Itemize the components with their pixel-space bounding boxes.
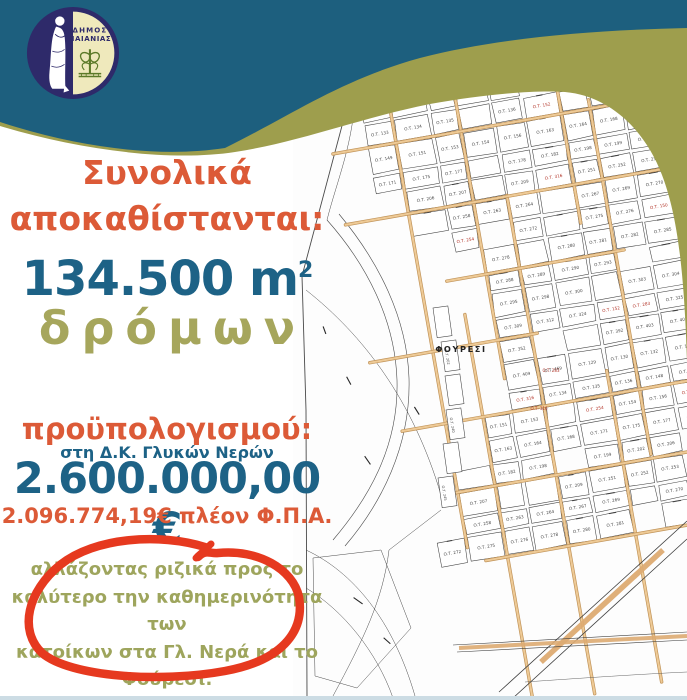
budget-label: προϋπολογισμού: xyxy=(0,412,334,446)
bottom-edge-strip xyxy=(0,696,687,700)
headline-line2: αποκαθίστανται: xyxy=(10,199,325,238)
area-number: 134.500 m xyxy=(22,251,298,307)
headline: Συνολικά αποκαθίστανται: xyxy=(0,150,334,242)
highlight-line: Φούρεσι. xyxy=(0,666,334,694)
budget-net: 2.096.774,19€ πλέον Φ.Π.Α. xyxy=(0,504,334,528)
restored-area-value: 134.500 m2 xyxy=(0,251,334,307)
highlight-line: καλύτερο την καθημερινότητα των xyxy=(0,584,334,639)
svg-text:Ο.Τ. 283: Ο.Τ. 283 xyxy=(542,368,559,373)
map-area-label: ΦΟΥΡΕΣΙ xyxy=(435,344,486,354)
highlight-line: αλλάζοντας ριζικά προς το xyxy=(0,556,334,584)
municipality-logo: ΔΗΜΟΣ ΠΑΙΑΝΙΑΣ xyxy=(26,6,120,100)
poster-canvas: Ο.Τ. 129Ο.Τ. 150Ο.Τ. 130Ο.Τ. 132Ο.Τ. 133… xyxy=(0,0,687,700)
area-unit-label: δρόμων xyxy=(0,301,334,355)
logo-text-line2: ΠΑΙΑΝΙΑΣ xyxy=(69,34,112,43)
announcement-column: Συνολικά αποκαθίστανται: 134.500 m2 δρόμ… xyxy=(0,0,334,700)
highlight-line: κατοίκων στα Γλ. Νερά και το xyxy=(0,639,334,667)
highlight-paragraph: αλλάζοντας ριζικά προς το καλύτερο την κ… xyxy=(0,556,334,694)
city-plan-map: Ο.Τ. 129Ο.Τ. 150Ο.Τ. 130Ο.Τ. 132Ο.Τ. 133… xyxy=(293,80,687,698)
svg-text:Ο.Τ. 316: Ο.Τ. 316 xyxy=(530,406,547,411)
area-exponent: 2 xyxy=(298,258,312,283)
headline-line1: Συνολικά xyxy=(82,153,252,192)
